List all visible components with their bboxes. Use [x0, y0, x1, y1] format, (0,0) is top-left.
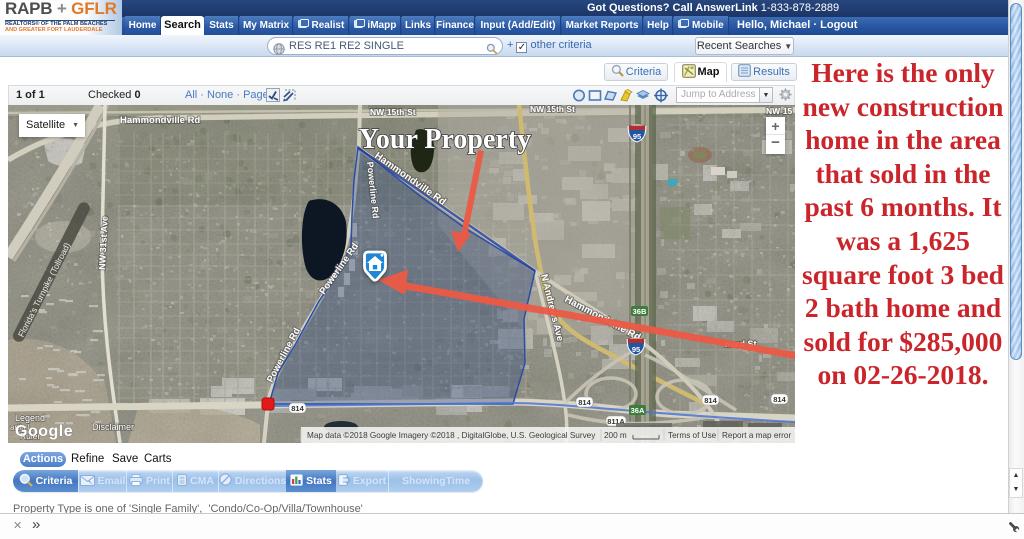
svg-text:95: 95: [632, 345, 640, 354]
svg-text:Terms of Use: Terms of Use: [668, 431, 717, 440]
svg-text:NW-15: NW-15: [766, 106, 793, 116]
svg-text:NW 15th St: NW 15th St: [530, 105, 575, 114]
svg-text:814: 814: [578, 398, 591, 407]
svg-text:Google: Google: [15, 423, 73, 440]
svg-text:814: 814: [704, 396, 717, 405]
svg-text:Your Property: Your Property: [359, 124, 531, 155]
svg-text:Hammondville Rd: Hammondville Rd: [120, 115, 200, 126]
svg-text:NW-15th-St: NW-15th-St: [370, 107, 416, 117]
svg-text:95: 95: [633, 132, 641, 141]
svg-text:200 m: 200 m: [604, 431, 627, 440]
svg-text:36A: 36A: [631, 406, 645, 415]
svg-text:Map data ©2018 Google Imagery: Map data ©2018 Google Imagery ©2018 , Di…: [307, 431, 596, 440]
svg-text:Legend: Legend: [15, 413, 45, 423]
svg-text:Report a map error: Report a map error: [722, 431, 791, 440]
svg-text:36B: 36B: [633, 307, 647, 316]
svg-text:Disclaimer: Disclaimer: [92, 422, 134, 432]
svg-text:814: 814: [773, 395, 786, 404]
svg-text:814: 814: [291, 404, 304, 413]
